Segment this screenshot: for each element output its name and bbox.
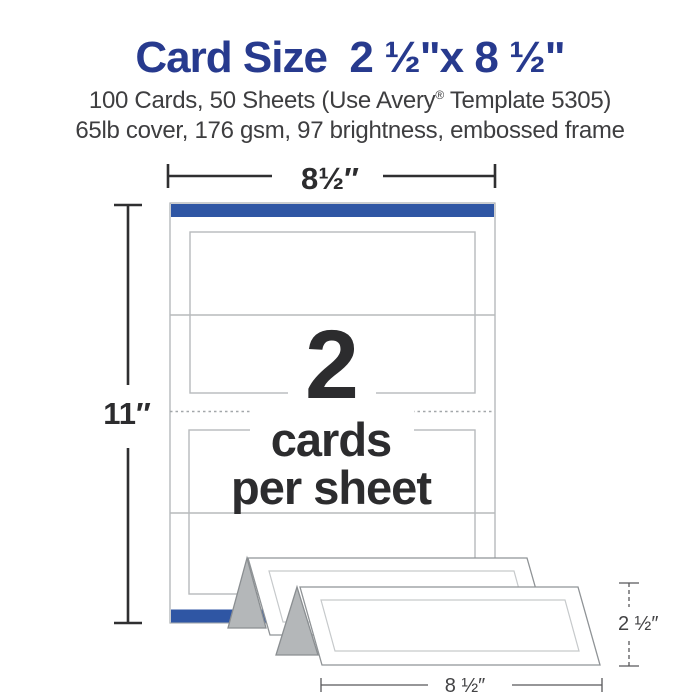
folded-tent-cards <box>228 558 600 665</box>
sheet-width-dimension: 8½″ <box>168 161 495 196</box>
sheet-diagram: 8½″ 11″ 2 cards per sheet <box>0 0 700 700</box>
card-height-label: 2 ½″ <box>618 613 658 635</box>
cards-per-sheet-count: 2 <box>305 310 357 419</box>
tent-card-front-face <box>300 587 600 665</box>
sheet-width-label: 8½″ <box>301 161 359 196</box>
product-infographic: Card Size 2 ½"x 8 ½" 100 Cards, 50 Sheet… <box>0 0 700 700</box>
cards-per-sheet-caption-line1: cards <box>271 413 391 466</box>
sheet-height-dimension: 11″ <box>103 205 151 623</box>
tent-card-front <box>276 587 600 665</box>
sheet-top-accent-bar <box>171 204 494 217</box>
card-width-dimension: 8 ½″ <box>321 675 602 697</box>
card-width-label: 8 ½″ <box>445 675 485 697</box>
cards-per-sheet-caption-line2: per sheet <box>231 461 432 514</box>
sheet-height-label: 11″ <box>103 396 151 431</box>
card-height-dimension: 2 ½″ <box>618 583 658 666</box>
